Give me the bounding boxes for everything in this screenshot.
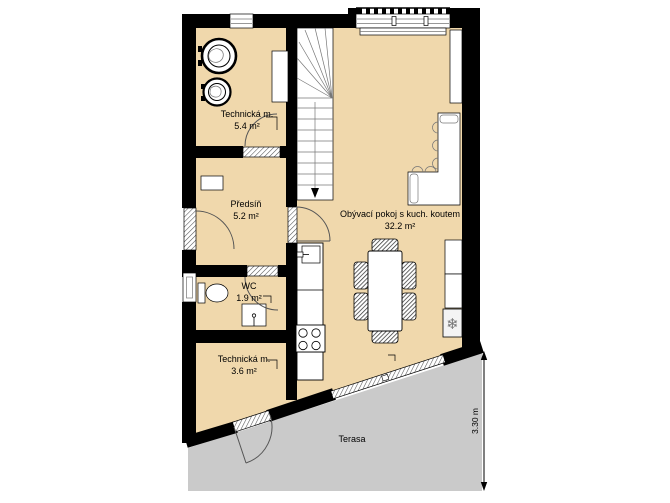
window-mullion bbox=[424, 17, 428, 26]
dining-chair bbox=[402, 293, 416, 320]
room-area-technicka-horni: 5.4 m² bbox=[234, 121, 260, 131]
wc-sink-icon bbox=[242, 304, 266, 326]
stove-icon bbox=[296, 325, 325, 352]
radiator-icon bbox=[360, 28, 446, 35]
kitchen-cabinet bbox=[445, 240, 462, 274]
fridge-icon: ❄ bbox=[443, 309, 462, 337]
room-label-terasa: Terasa bbox=[338, 434, 365, 444]
room-area-obyvaci: 32.2 m² bbox=[385, 221, 416, 231]
door-living bbox=[288, 207, 297, 243]
stairs-icon bbox=[297, 28, 333, 200]
window-living-north bbox=[356, 14, 450, 28]
dining-table-top bbox=[368, 251, 402, 331]
door-wc bbox=[247, 266, 278, 276]
dimension-label: 3.30 m bbox=[470, 408, 480, 434]
room-area-wc: 1.9 m² bbox=[236, 293, 262, 303]
dining-chair bbox=[354, 293, 368, 320]
door-technicka-horni bbox=[243, 147, 280, 157]
room-area-technicka-dolni: 3.6 m² bbox=[231, 366, 257, 376]
dining-chair bbox=[372, 239, 398, 252]
room-label-predsin: Předsíň bbox=[230, 199, 261, 209]
window-wc bbox=[183, 273, 196, 302]
hall-cabinet bbox=[201, 176, 223, 190]
dining-chair bbox=[402, 262, 416, 289]
dining-chair bbox=[354, 262, 368, 289]
window-mullion bbox=[392, 17, 396, 26]
toilet-icon bbox=[198, 283, 228, 303]
shutter-teeth bbox=[358, 8, 450, 14]
snowflake-symbol: ❄ bbox=[446, 315, 459, 333]
room-label-wc: WC bbox=[242, 281, 257, 291]
dining-chair bbox=[372, 330, 398, 343]
room-label-technicka-horni: Technická m. bbox=[221, 109, 274, 119]
floor-plan-canvas: ❄ bbox=[0, 0, 670, 503]
tall-cabinet bbox=[450, 30, 462, 103]
room-label-technicka-dolni: Technická m. bbox=[218, 354, 271, 364]
room-label-obyvaci: Obývací pokoj s kuch. koutem bbox=[340, 209, 460, 219]
boiler-cabinet bbox=[272, 51, 288, 102]
room-area-predsin: 5.2 m² bbox=[233, 211, 259, 221]
floor-plan: ❄ bbox=[0, 0, 670, 503]
kitchen-cabinet bbox=[445, 274, 462, 308]
kitchen-counter bbox=[297, 243, 323, 380]
entry-door bbox=[184, 208, 196, 250]
window-top-left bbox=[230, 14, 253, 28]
